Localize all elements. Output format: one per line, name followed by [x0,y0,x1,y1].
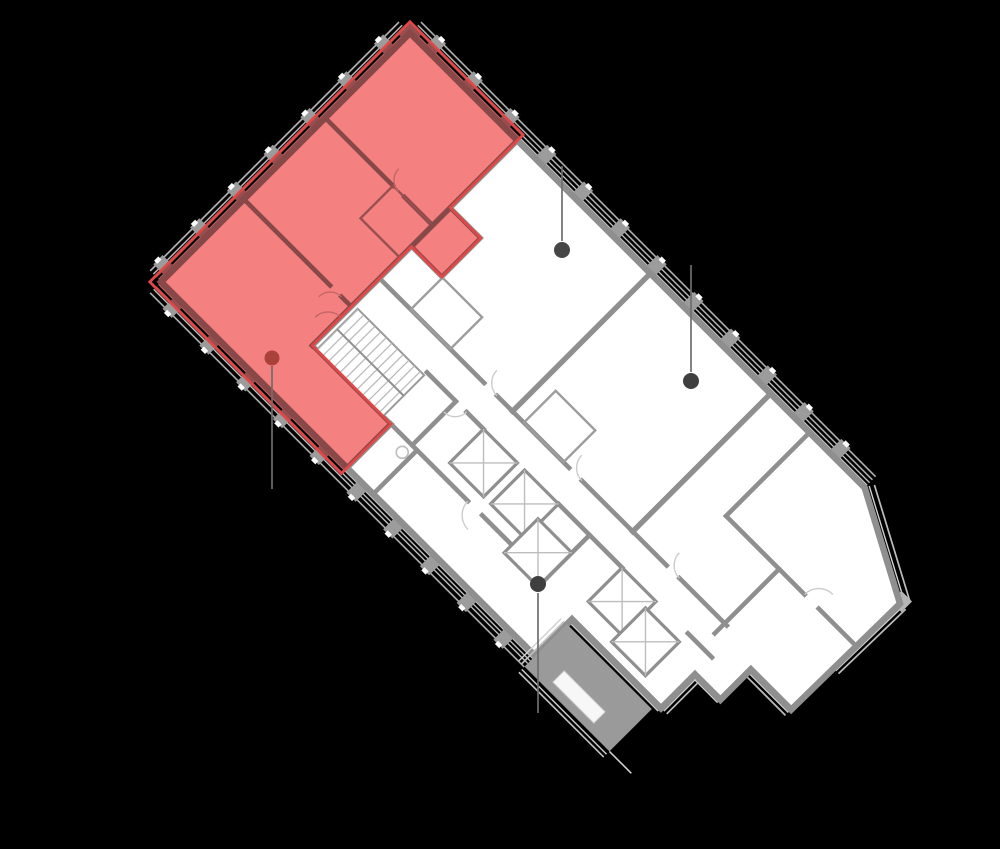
unit-marker-dot[interactable] [554,242,570,258]
unit-marker-dot-selected[interactable] [265,351,280,366]
unit-marker-dot[interactable] [683,373,699,389]
floor-plan-stage [0,0,1000,849]
unit-marker-dot[interactable] [530,576,546,592]
floor-plan-canvas [0,0,1000,849]
